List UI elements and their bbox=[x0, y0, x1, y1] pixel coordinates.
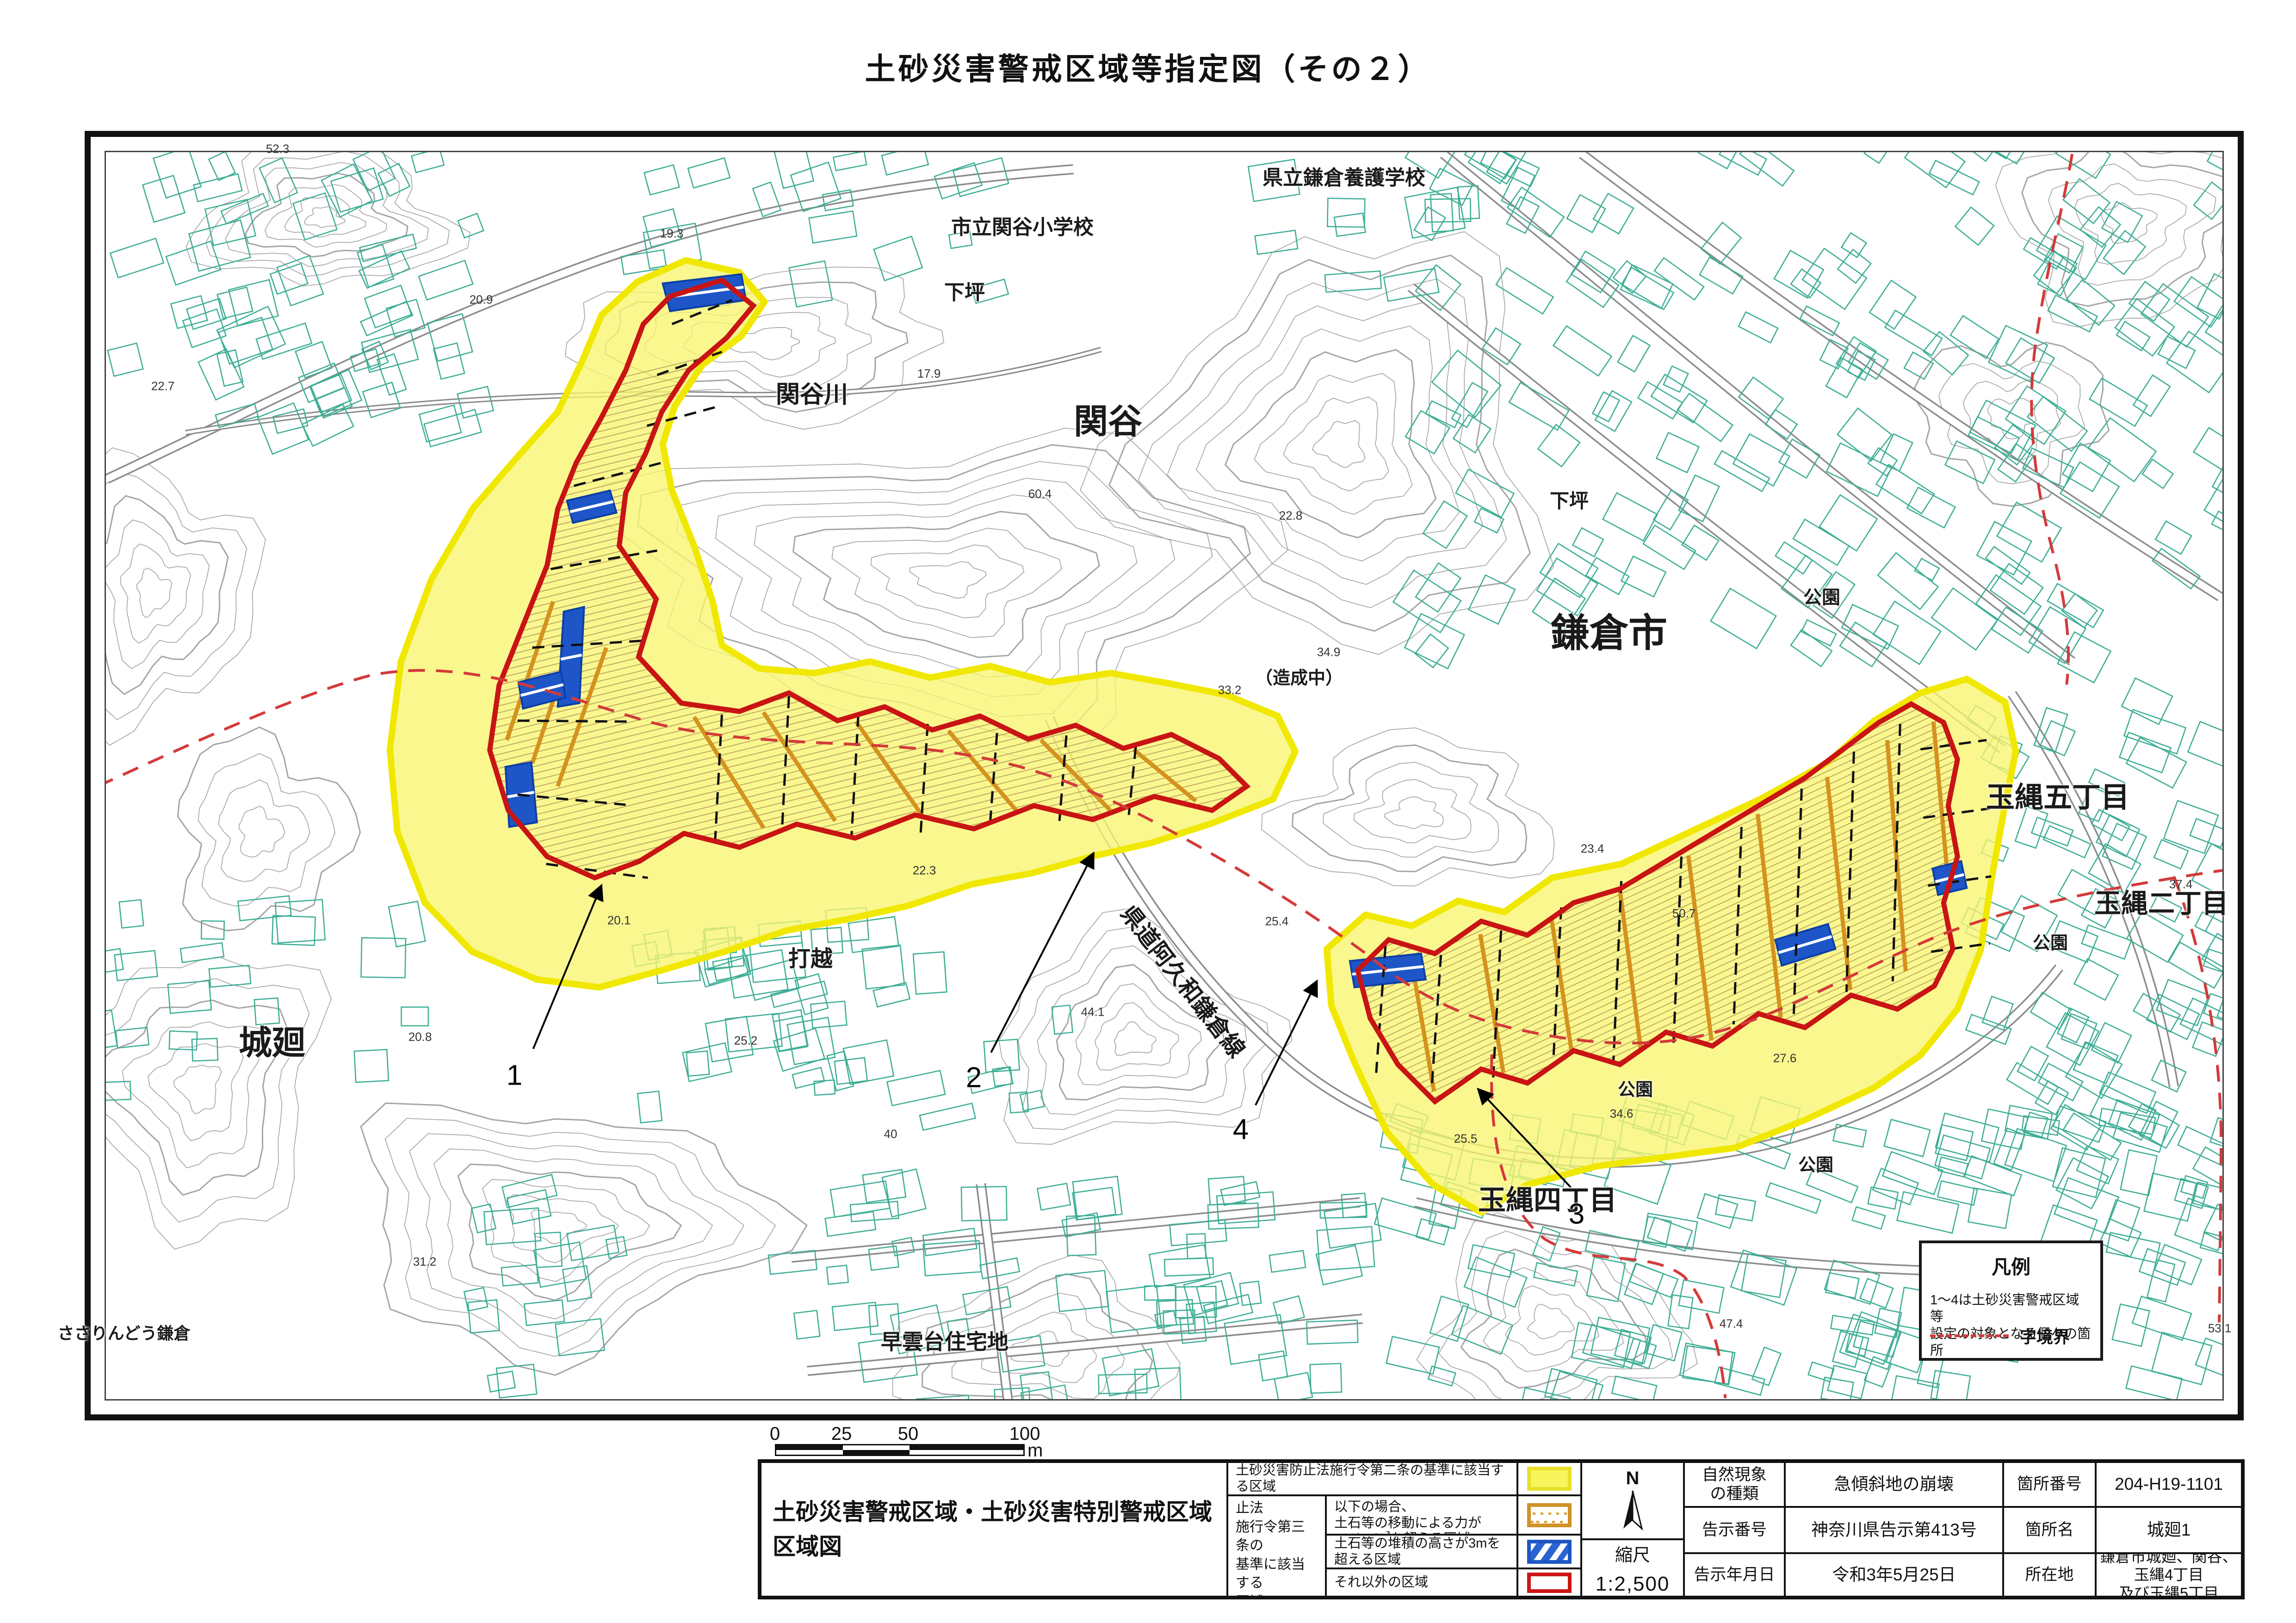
meta-value-phenomenon: 急傾斜地の崩壊 bbox=[1834, 1474, 1954, 1494]
scale-bar: 0 25 50 100 m bbox=[766, 1424, 1062, 1461]
law3-label: 土砂災害防止法 施行令第三条の 基準に該当する 区域 bbox=[1228, 1496, 1325, 1596]
north-compass: N bbox=[1618, 1468, 1647, 1534]
map-drawing bbox=[106, 152, 2222, 1399]
map-canvas bbox=[105, 151, 2224, 1401]
meta-label-notice-number: 告示番号 bbox=[1702, 1521, 1767, 1539]
scale-tick-50: 50 bbox=[898, 1424, 919, 1444]
page-title: 土砂災害警戒区域等指定図（その２） bbox=[0, 44, 2296, 89]
swatch-debris-height bbox=[1527, 1540, 1572, 1564]
scale-tick-25: 25 bbox=[831, 1424, 852, 1444]
sheet-title: 土砂災害警戒区域・土砂災害特別警戒区域 区域図 bbox=[761, 1495, 1223, 1564]
swatch-debris-force bbox=[1527, 1503, 1572, 1527]
swatch-warning-zone bbox=[1527, 1467, 1572, 1491]
scale-tick-0: 0 bbox=[770, 1424, 780, 1444]
warning-zones-yellow bbox=[390, 260, 2016, 1212]
info-table: 土砂災害警戒区域・土砂災害特別警戒区域 区域図 土砂災害防止法施行令第二条の基準… bbox=[758, 1459, 2245, 1599]
law2-text: 土砂災害防止法施行令第二条の基準に該当する区域 bbox=[1228, 1463, 1516, 1495]
meta-value-site-number: 204-H19-1101 bbox=[2115, 1474, 2223, 1494]
compass-n-label: N bbox=[1618, 1468, 1647, 1489]
meta-label-location: 所在地 bbox=[2025, 1566, 2073, 1584]
map-frame bbox=[85, 131, 2244, 1420]
north-arrow-icon bbox=[1618, 1489, 1647, 1531]
scale-ratio: 1:2,500 bbox=[1582, 1573, 1683, 1596]
meta-value-location: 鎌倉市城廻、関谷、玉縄4丁目 及び玉縄5丁目 bbox=[2097, 1554, 2241, 1596]
law3-row2-text: 土石等の堆積の高さが3mを超える区域 bbox=[1327, 1536, 1516, 1567]
meta-value-site-name: 城廻1 bbox=[2147, 1520, 2191, 1540]
scale-unit: m bbox=[1027, 1440, 1043, 1461]
swatch-other-zone bbox=[1527, 1573, 1572, 1593]
meta-label-site-number: 箇所番号 bbox=[2017, 1475, 2082, 1493]
meta-label-phenomenon: 自然現象 の種類 bbox=[1702, 1466, 1767, 1503]
page: 土砂災害警戒区域等指定図（その２） bbox=[0, 0, 2296, 1623]
meta-value-notice-number: 神奈川県告示第413号 bbox=[1811, 1520, 1977, 1540]
law3-row3-text: それ以外の区域 bbox=[1327, 1574, 1436, 1591]
scale-bar-graphic bbox=[775, 1444, 1025, 1456]
scale-caption: 縮尺 bbox=[1582, 1541, 1683, 1566]
law3-row1-text: 土石等の（移動）高さが1m以下の場合、 土石等の移動による力が100kN/㎡を超… bbox=[1327, 1496, 1516, 1536]
meta-label-site-name: 箇所名 bbox=[2025, 1521, 2073, 1539]
meta-value-notice-date: 令和3年5月25日 bbox=[1832, 1565, 1956, 1585]
meta-label-notice-date: 告示年月日 bbox=[1694, 1566, 1775, 1584]
